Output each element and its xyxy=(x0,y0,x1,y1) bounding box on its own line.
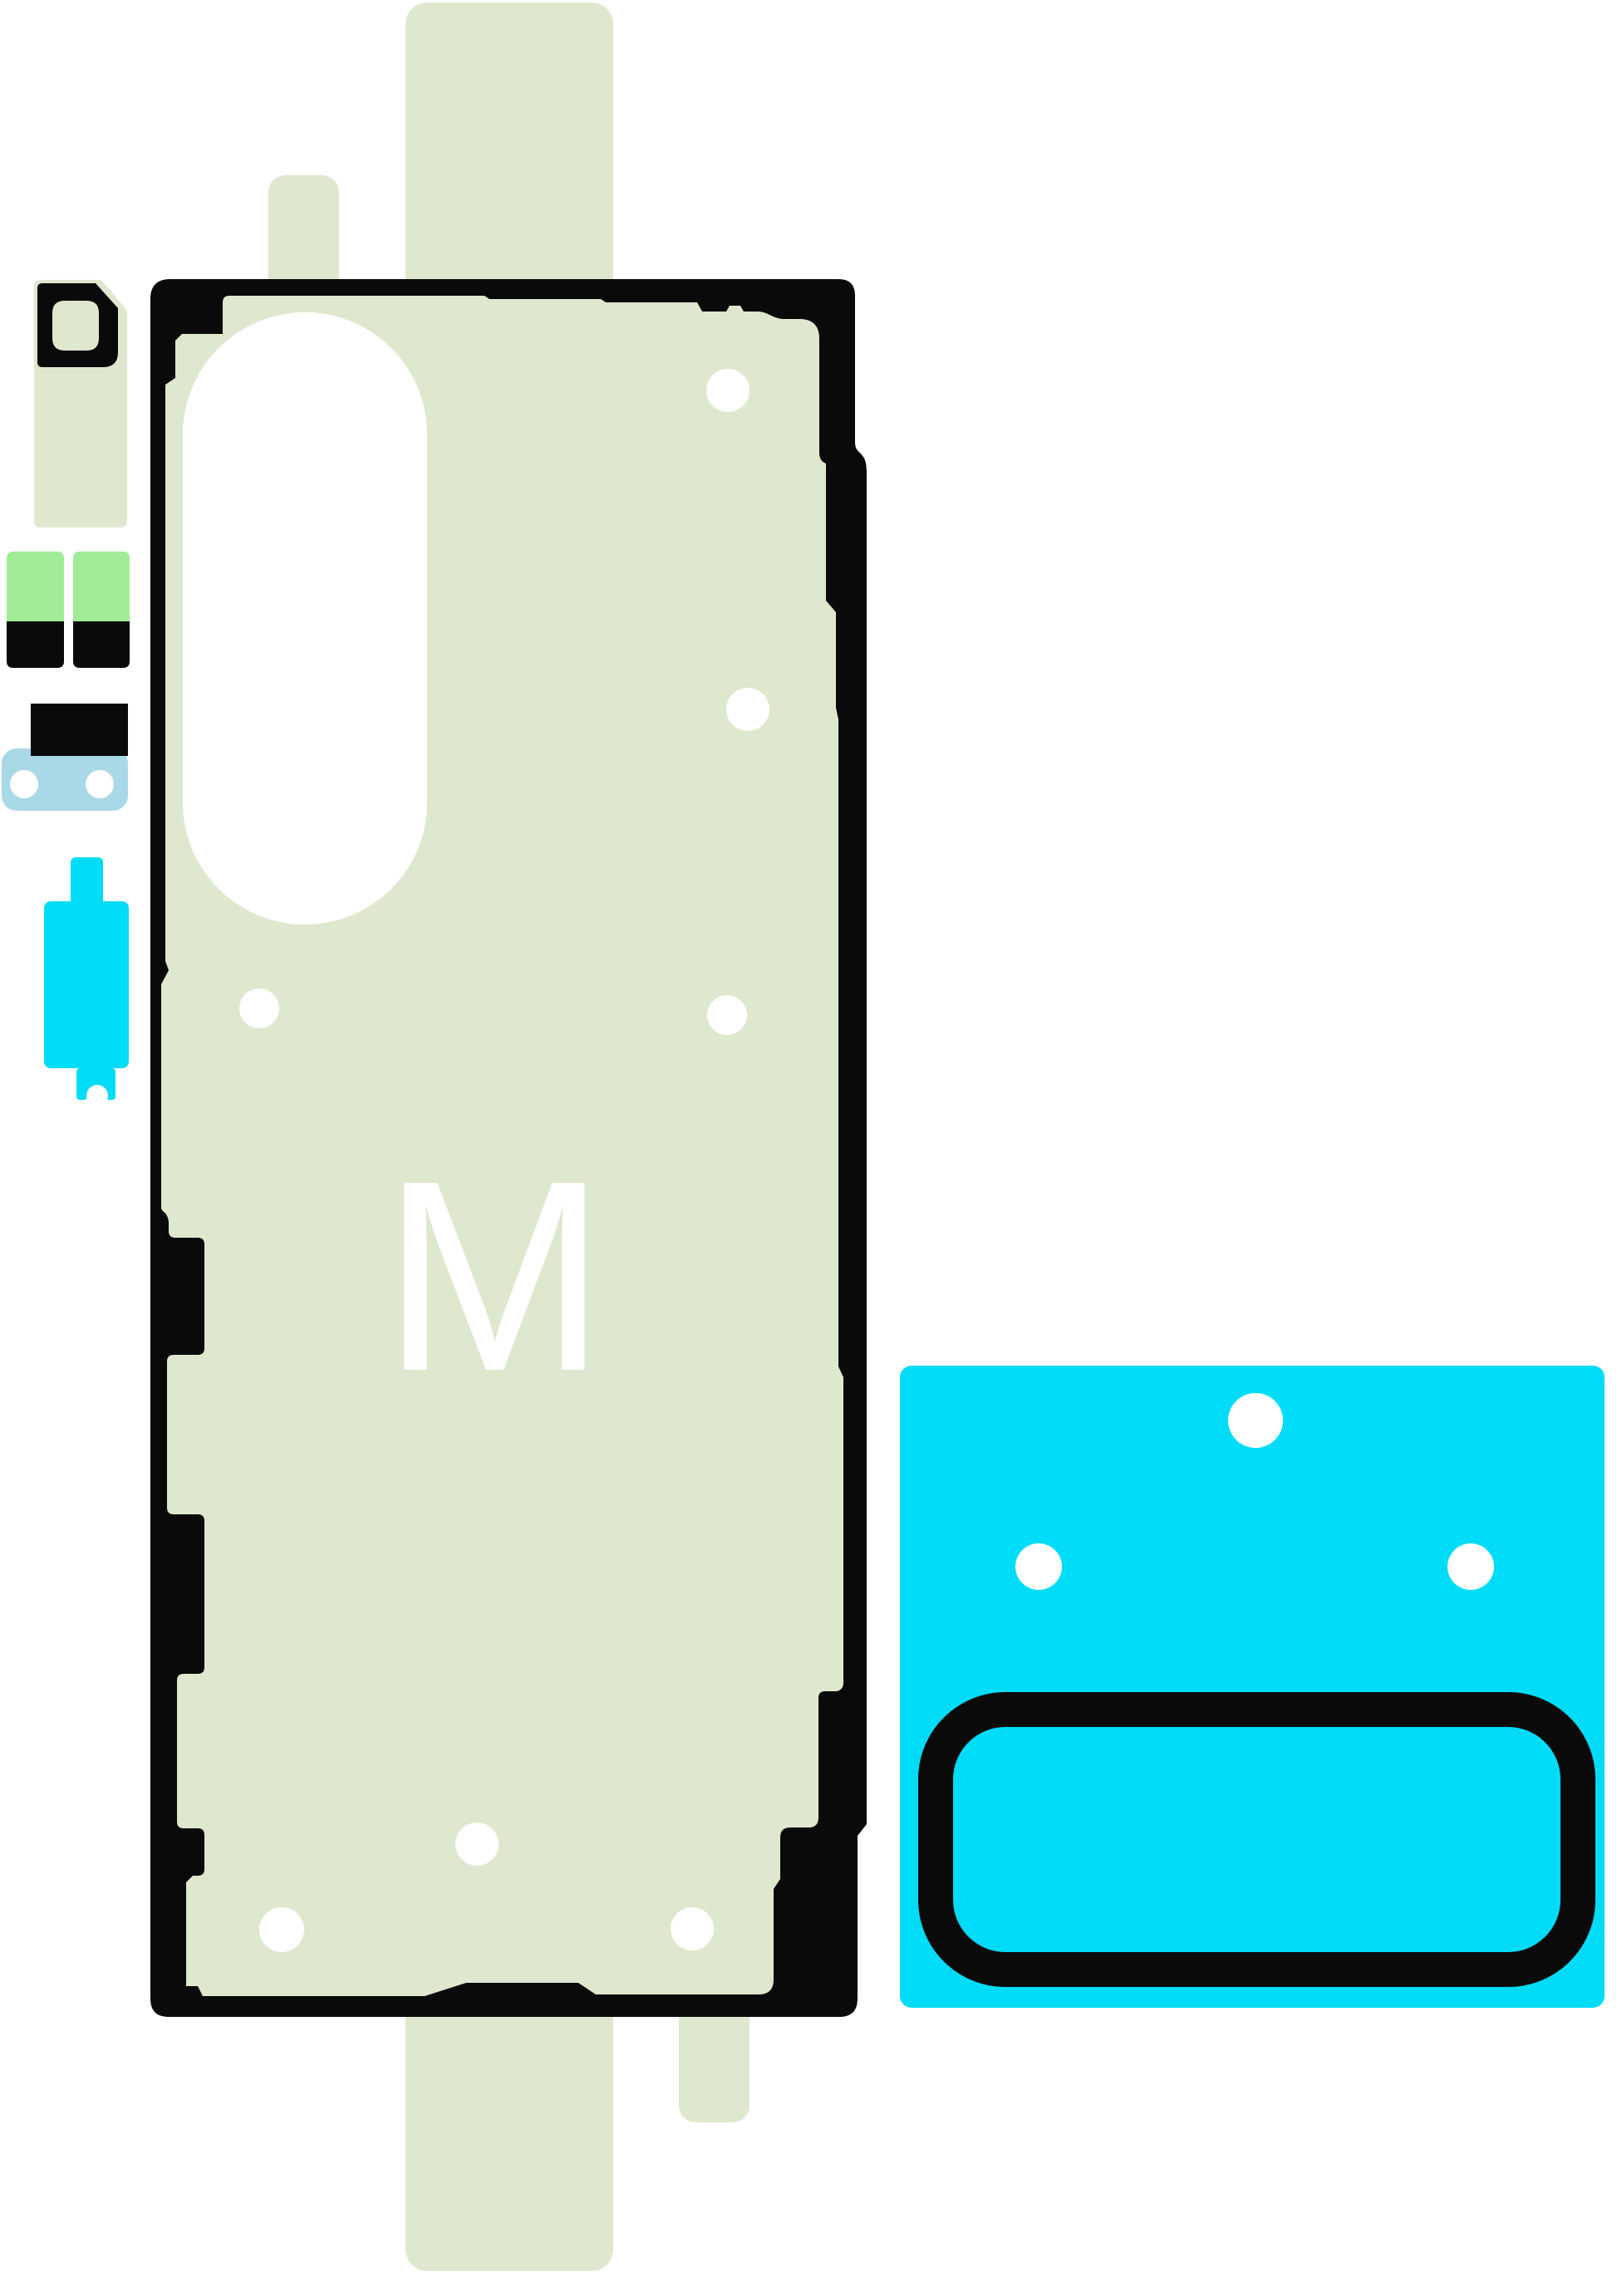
svg-text:M: M xyxy=(382,1125,607,1428)
